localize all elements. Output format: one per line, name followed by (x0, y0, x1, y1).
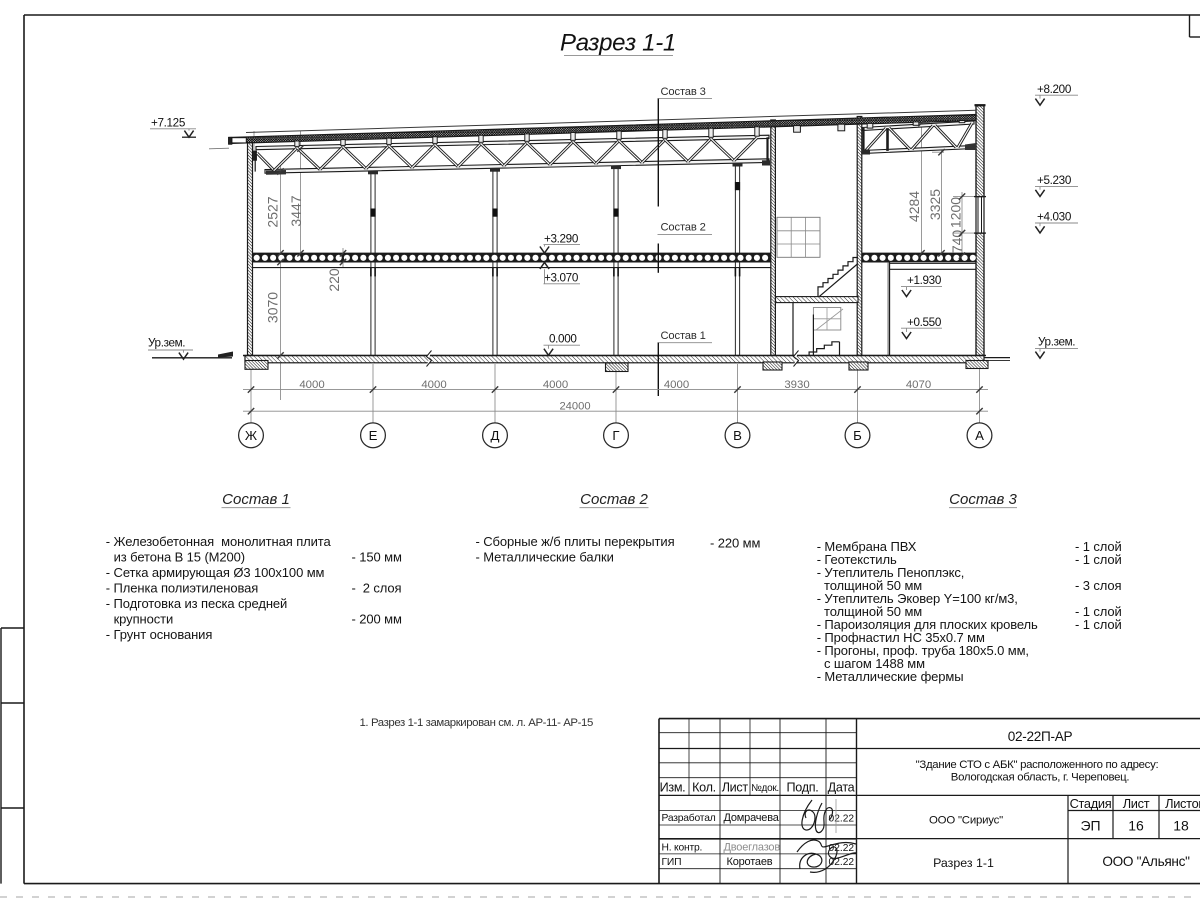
svg-text:Вологодская область, г. Черепо: Вологодская область, г. Череповец. (951, 772, 1130, 784)
svg-text:4070: 4070 (906, 379, 931, 391)
svg-text:- 1 слой: - 1 слой (1075, 552, 1122, 567)
svg-text:Г: Г (612, 428, 619, 443)
svg-text:ГИП: ГИП (662, 857, 682, 868)
svg-text:- 220 мм: - 220 мм (710, 536, 760, 551)
svg-text:"Здание СТО с АБК" расположенн: "Здание СТО с АБК" расположенного по адр… (916, 759, 1159, 771)
svg-text:- 2 слоя: - 2 слоя (352, 580, 402, 595)
svg-text:2527: 2527 (265, 196, 281, 227)
svg-text:Разрез 1-1: Разрез 1-1 (560, 30, 676, 57)
svg-text:- Сетка армирующая Ø3 100х100: - Сетка армирующая Ø3 100х100 мм (106, 565, 325, 580)
svg-text:- Сборные ж/б плиты перекрытия: - Сборные ж/б плиты перекрытия (476, 534, 675, 549)
svg-text:из бетона В 15 (М200): из бетона В 15 (М200) (114, 549, 245, 564)
svg-text:Разработал: Разработал (662, 812, 716, 824)
svg-text:- 150 мм: - 150 мм (352, 549, 402, 564)
svg-text:1200: 1200 (948, 197, 964, 228)
svg-text:- Грунт основания: - Грунт основания (106, 627, 213, 642)
svg-text:+8.200: +8.200 (1037, 83, 1072, 96)
svg-text:Ур.зем.: Ур.зем. (1038, 336, 1075, 349)
svg-text:+1.930: +1.930 (907, 274, 942, 287)
svg-text:Подп.: Подп. (787, 780, 819, 794)
svg-text:Лист: Лист (1123, 796, 1150, 811)
svg-text:- Пленка полиэтиленовая: - Пленка полиэтиленовая (106, 580, 259, 595)
svg-text:4284: 4284 (906, 191, 922, 222)
svg-text:+3.070: +3.070 (544, 272, 579, 285)
svg-text:Разрез 1-1: Разрез 1-1 (933, 856, 994, 870)
svg-text:+3.290: +3.290 (544, 232, 579, 245)
svg-text:Изм.: Изм. (660, 780, 686, 794)
svg-text:+0.550: +0.550 (907, 316, 942, 329)
svg-text:3447: 3447 (288, 195, 304, 226)
svg-text:Лист: Лист (722, 780, 749, 794)
svg-text:Стадия: Стадия (1070, 796, 1112, 811)
svg-text:Ур.зем.: Ур.зем. (148, 337, 185, 350)
svg-text:Б: Б (853, 428, 862, 443)
svg-text:ООО "Альянс": ООО "Альянс" (1102, 854, 1190, 869)
svg-text:3070: 3070 (265, 292, 281, 323)
svg-text:- Подготовка из песка средней: - Подготовка из песка средней (106, 596, 287, 611)
svg-text:Состав 1: Состав 1 (661, 330, 706, 342)
svg-text:Н. контр.: Н. контр. (662, 843, 703, 854)
svg-text:Е: Е (369, 428, 378, 443)
svg-text:ООО "Сириус": ООО "Сириус" (929, 815, 1003, 827)
svg-text:Ж: Ж (245, 428, 257, 443)
svg-text:3930: 3930 (784, 379, 809, 391)
svg-text:Состав 2: Состав 2 (580, 491, 648, 508)
svg-text:4000: 4000 (421, 379, 446, 391)
svg-text:№док.: №док. (751, 783, 779, 794)
svg-text:Коротаев: Коротаев (727, 856, 773, 868)
svg-text:0.000: 0.000 (549, 333, 577, 346)
svg-text:1. Разрез 1-1 замаркирован см.: 1. Разрез 1-1 замаркирован см. л. АР-11-… (360, 717, 593, 729)
svg-text:+7.125: +7.125 (151, 117, 186, 130)
svg-text:3325: 3325 (927, 189, 943, 220)
svg-text:Состав 3: Состав 3 (661, 86, 706, 98)
svg-text:ЭП: ЭП (1080, 817, 1100, 833)
svg-text:Д: Д (491, 428, 500, 443)
svg-text:А: А (975, 428, 984, 443)
svg-text:Листов: Листов (1165, 796, 1200, 811)
svg-text:4000: 4000 (299, 379, 324, 391)
svg-text:02-22П-АР: 02-22П-АР (1008, 729, 1073, 744)
svg-text:16: 16 (1128, 817, 1144, 833)
svg-text:18: 18 (1173, 817, 1189, 833)
svg-text:+5.230: +5.230 (1037, 174, 1072, 187)
svg-text:Дата: Дата (828, 780, 855, 794)
svg-text:В: В (733, 428, 742, 443)
svg-text:24000: 24000 (559, 401, 590, 413)
svg-text:220: 220 (326, 268, 342, 292)
svg-text:Домрачева: Домрачева (724, 812, 780, 824)
svg-text:Состав 2: Состав 2 (661, 222, 706, 234)
svg-text:Состав 3: Состав 3 (949, 491, 1017, 508)
svg-text:- 1 слой: - 1 слой (1075, 617, 1122, 632)
svg-text:- Железобетонная монолитная п: - Железобетонная монолитная плита (106, 534, 332, 549)
svg-text:4000: 4000 (543, 379, 568, 391)
svg-text:крупности: крупности (114, 611, 174, 626)
svg-text:Состав 1: Состав 1 (222, 491, 290, 508)
svg-text:4000: 4000 (664, 379, 689, 391)
svg-text:Двоеглазов: Двоеглазов (724, 842, 781, 854)
svg-text:- Металлические фермы: - Металлические фермы (817, 669, 964, 684)
svg-text:Кол.: Кол. (692, 780, 716, 794)
svg-text:- Металлические балки: - Металлические балки (476, 549, 614, 564)
svg-text:+4.030: +4.030 (1037, 211, 1072, 224)
svg-text:- 200 мм: - 200 мм (352, 611, 402, 626)
svg-text:- 3 слоя: - 3 слоя (1075, 578, 1122, 593)
